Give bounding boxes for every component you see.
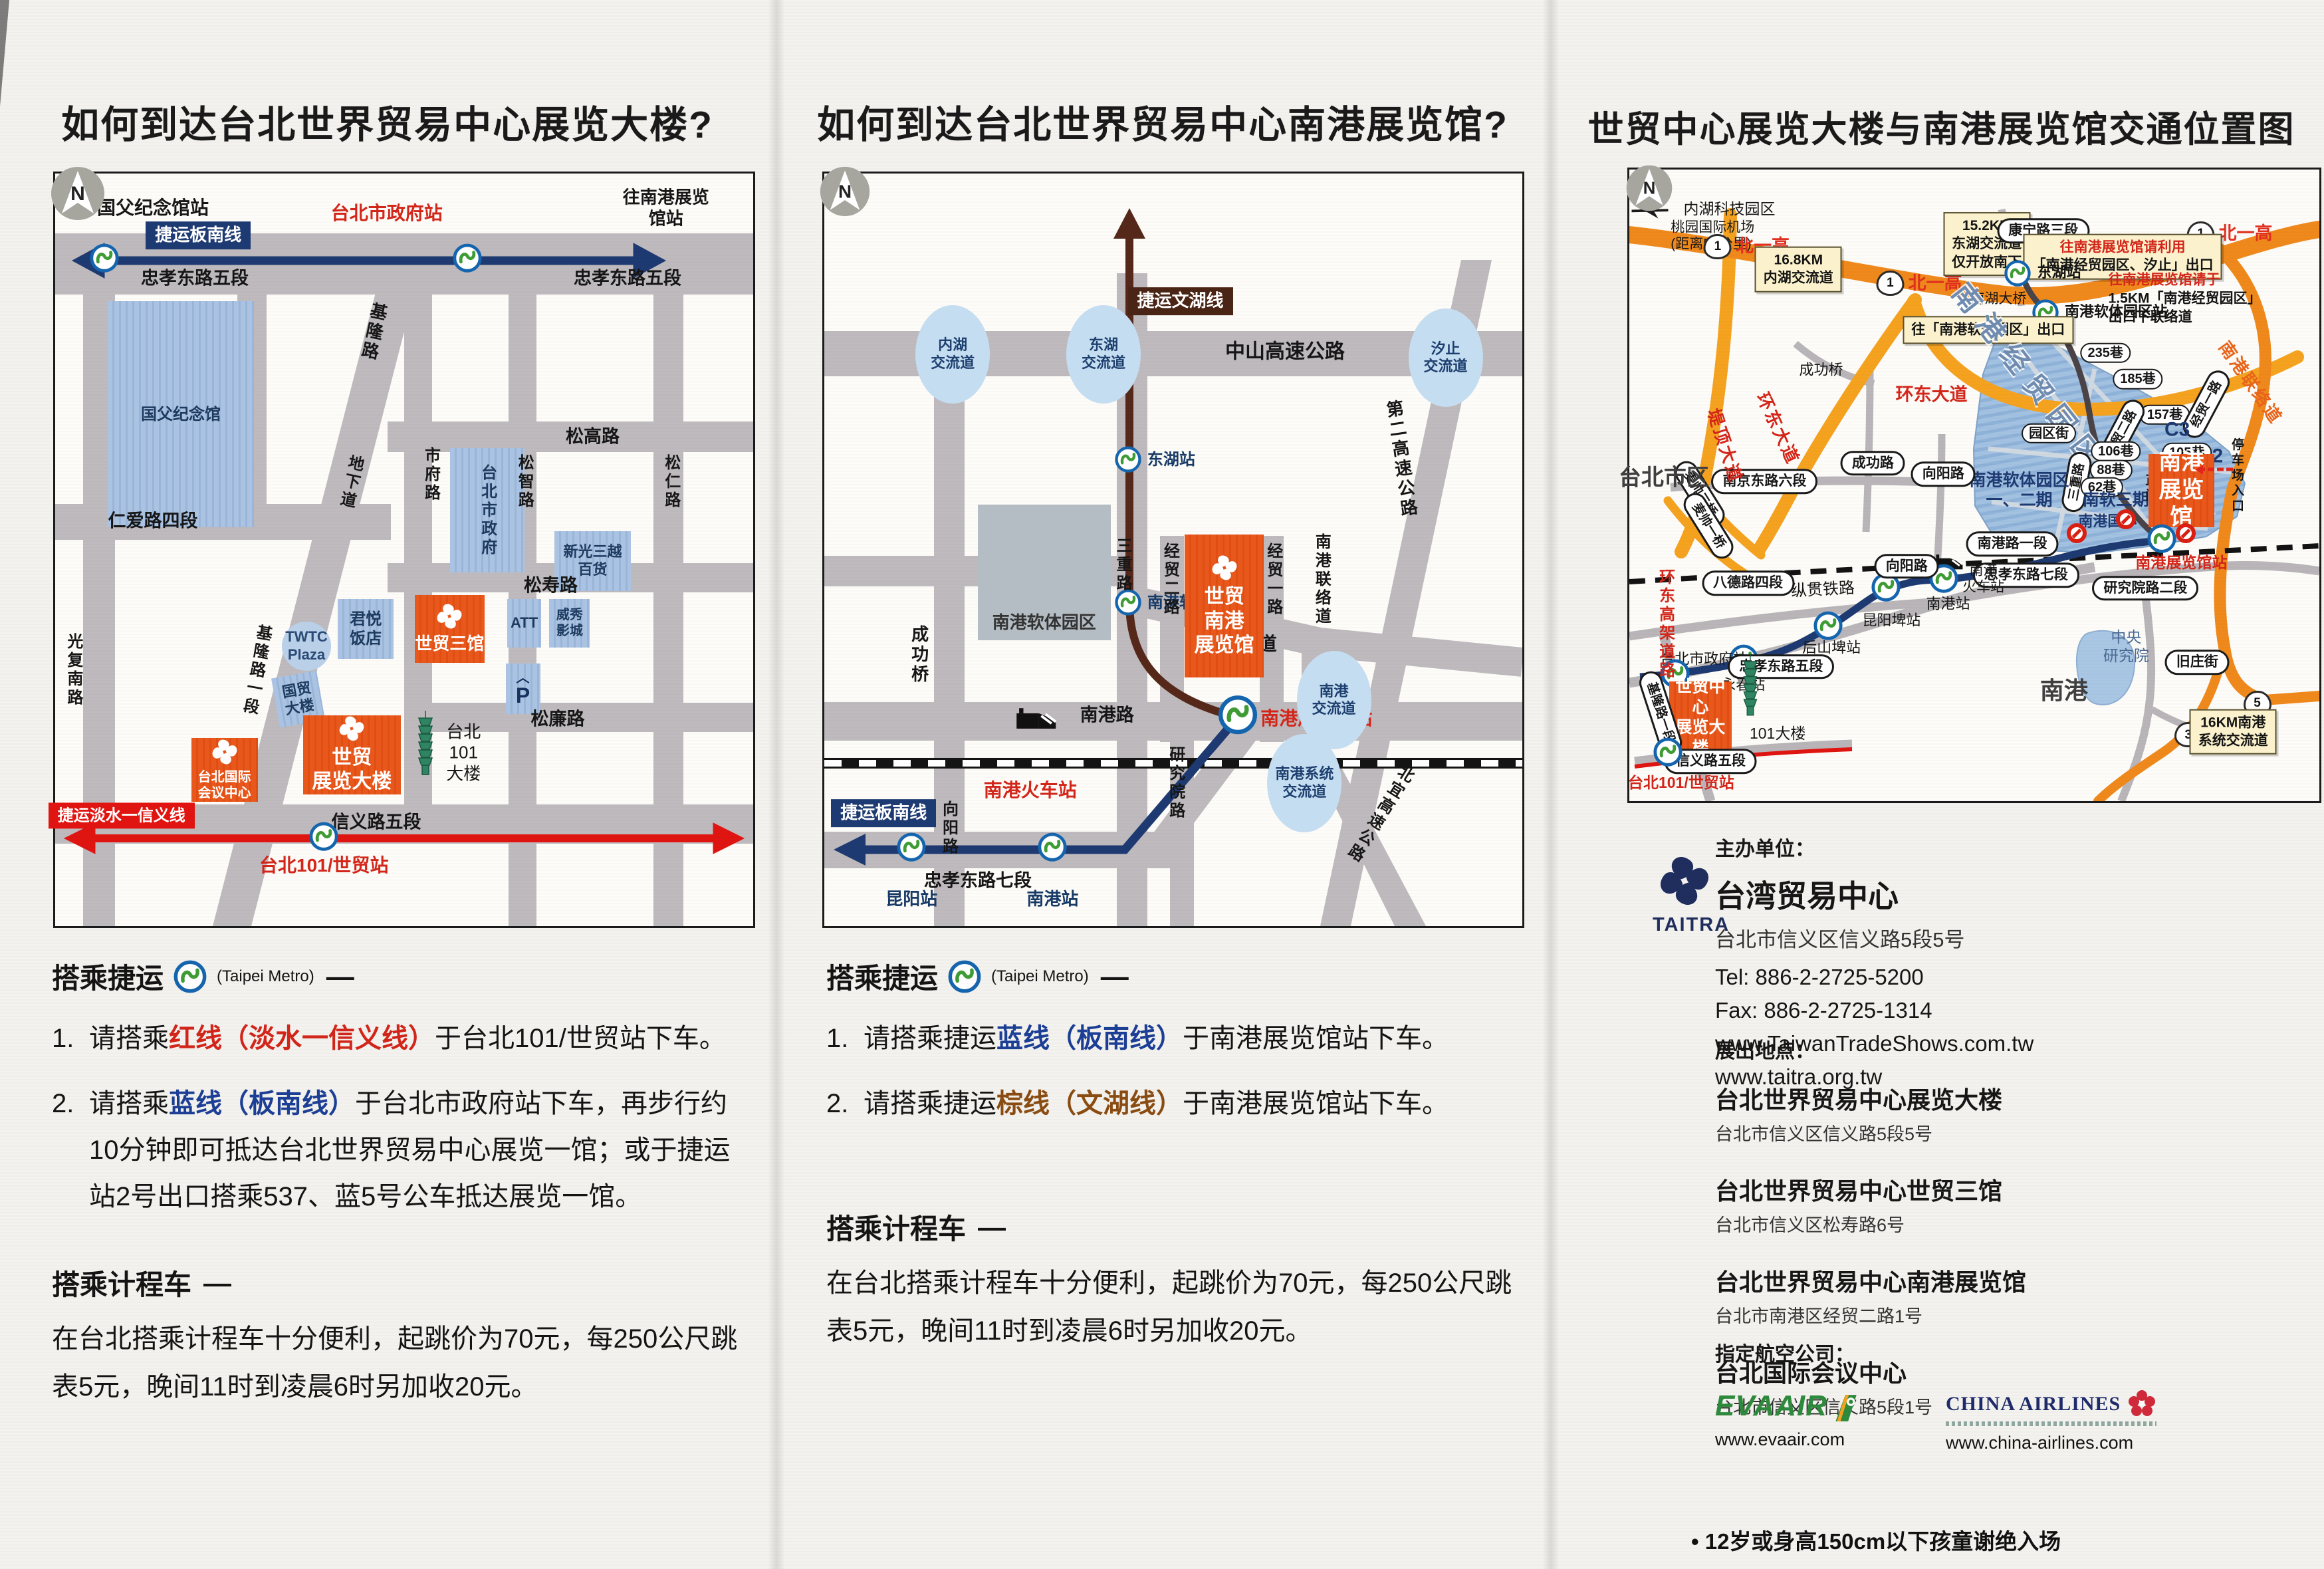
map-label: 101大楼 xyxy=(1750,724,1805,743)
road-label: 向阳路 xyxy=(939,800,958,856)
info-box: 16KM南港系统交流道 xyxy=(2190,709,2277,755)
map-label: 环东大道 xyxy=(1896,384,1968,406)
step-text: 于台北101/世贸站下车。 xyxy=(435,1024,726,1053)
road-label: 松智路 xyxy=(515,454,534,510)
panel1-title: 如何到达台北世界贸易中心展览大楼? xyxy=(0,94,774,149)
road-sign: 成功路 xyxy=(1841,451,1905,476)
map-label: 昆阳站 xyxy=(885,890,937,911)
road-sign: 南港路一段 xyxy=(1966,532,2059,557)
dash: — xyxy=(203,1267,231,1299)
mrt-station: 东湖站 xyxy=(1114,445,1195,473)
venue-address: 台北市南港区经贸二路1号 xyxy=(1715,1302,2300,1328)
taxi-heading-row: 搭乘计程车 — xyxy=(52,1263,747,1303)
metro-step: 2.请搭乘蓝线（板南线）于台北市政府站下车，再步行约10分钟即可抵达台北世界贸易… xyxy=(52,1080,747,1220)
plum-blossom-icon xyxy=(2127,1389,2156,1419)
metro-station-icon xyxy=(89,243,120,279)
road-label: 南港路 xyxy=(1080,705,1134,727)
building-block: 君悦 饭店 xyxy=(338,599,394,660)
taitra-pinwheel-icon xyxy=(211,739,238,765)
china-airlines-name: CHINA AIRLINES xyxy=(1946,1393,2121,1415)
panel1-instructions: 搭乘捷运 (Taipei Metro) — 1.请搭乘红线（淡水一信义线）于台北… xyxy=(52,956,747,1411)
road-label: 中山高速公路 xyxy=(1225,340,1345,365)
road-label: 成功桥 xyxy=(908,625,929,685)
taxi-heading: 搭乘计程车 xyxy=(52,1263,191,1303)
dash: — xyxy=(1101,961,1129,993)
metro-station-icon xyxy=(1653,737,1683,773)
step-text: 蓝线（板南线） xyxy=(996,1024,1183,1053)
map-label: 台北市区 xyxy=(1619,464,1709,491)
metro-step: 1.请搭乘红线（淡水一信义线）于台北101/世贸站下车。 xyxy=(52,1015,747,1062)
highway-name: 北一高 xyxy=(2219,223,2273,245)
info-box-line: 系统交流道 xyxy=(2198,732,2268,750)
road-label: 经贸一路 xyxy=(1264,543,1283,617)
road-sign: 旧庄街 xyxy=(2165,650,2230,675)
panel3-title: 世贸中心展览大楼与南港展览馆交通位置图 xyxy=(1559,100,2324,152)
metro-steps: 1.请搭乘捷运蓝线（板南线）于南港展览馆站下车。2.请搭乘捷运棕线（文湖线）于南… xyxy=(826,1015,1521,1127)
organizer-address: 台北市信义区信义路5段5号 xyxy=(1715,923,2300,953)
step-number: 2. xyxy=(826,1080,848,1127)
building-block: 南港软体园区 xyxy=(978,505,1111,640)
taxi-text: 在台北搭乘计程车十分便利，起跳价为70元，每250公尺跳表5元，晚间11时到凌晨… xyxy=(826,1259,1521,1355)
road-label: 光复南路 xyxy=(64,633,83,707)
panel2-title: 如何到达台北世界贸易中心南港展览馆? xyxy=(775,94,1550,149)
venue-name: 台北世界贸易中心南港展览馆 xyxy=(1715,1263,2300,1298)
road-label: 忠孝东路五段 xyxy=(141,268,249,290)
map-label: 南港站 xyxy=(1026,890,1078,911)
road-sign: 向阳路 xyxy=(1875,554,1939,579)
highway-number: 1 xyxy=(1876,271,1904,296)
metro-station-icon xyxy=(452,243,483,279)
road-label: 环东高架道路 xyxy=(1655,568,1675,680)
compass-icon xyxy=(819,166,871,221)
eva-air-url: www.evaair.com xyxy=(1715,1429,1859,1450)
road-label: 忠孝东路五段 xyxy=(574,268,681,290)
eva-air-tailfin-icon xyxy=(1831,1393,1859,1423)
no-entry-icon xyxy=(2176,523,2196,543)
venue-name: 台北世界贸易中心展览大楼 xyxy=(1715,1081,2300,1116)
interchange-label: 内湖 交流道 xyxy=(915,305,990,404)
map-label: 纵贯铁路 xyxy=(1790,578,1855,601)
road-sign: 八德路四段 xyxy=(1702,570,1794,596)
metro-heading-row: 搭乘捷运 (Taipei Metro) — xyxy=(826,956,1521,997)
step-text: 红线（淡水一信义线） xyxy=(169,1024,435,1053)
metro-step: 1.请搭乘捷运蓝线（板南线）于南港展览馆站下车。 xyxy=(826,1015,1521,1062)
china-airlines-url: www.china-airlines.com xyxy=(1946,1433,2156,1453)
scan-edge-shadow xyxy=(0,0,9,106)
map-twtc-exhibition-hall: 国父纪念馆站捷运板南线台北市政府站往南港展览馆站忠孝东路五段忠孝东路五段基隆路国… xyxy=(53,172,755,928)
metro-caption: (Taipei Metro) xyxy=(991,967,1089,986)
step-text: 请搭乘 xyxy=(89,1024,169,1053)
map-label: 国父纪念馆站 xyxy=(97,197,209,219)
map-label: 中央 研究院 xyxy=(2103,628,2149,665)
taipei-metro-icon xyxy=(947,959,982,994)
airlines-heading: 指定航空公司： xyxy=(1715,1338,2300,1367)
step-text: 请搭乘捷运 xyxy=(864,1089,996,1118)
highway-number: 1 xyxy=(1704,234,1732,259)
building-block: 台北市政府 xyxy=(450,448,524,572)
venues-heading: 展出地点： xyxy=(1715,1034,2300,1064)
step-text: 请搭乘捷运 xyxy=(864,1024,996,1053)
step-number: 2. xyxy=(52,1080,74,1127)
organizer-name: 台湾贸易中心 xyxy=(1715,872,2300,916)
map-label: 昆阳埤站 xyxy=(1862,612,1920,630)
road-sign: 106巷 xyxy=(2091,441,2141,461)
mrt-station-label: 南港软体园区站 xyxy=(2065,303,2167,321)
building-block: ATT xyxy=(507,599,540,648)
road-label: 经贸二路 xyxy=(1160,543,1179,617)
mrt-station-label: 东湖站 xyxy=(1147,450,1195,469)
road-label: 松高路 xyxy=(566,426,620,448)
road-label: 松寿路 xyxy=(524,575,578,597)
venue-address: 台北市信义区信义路5段5号 xyxy=(1715,1120,2300,1146)
road-label: 松仁路 xyxy=(661,454,680,510)
dash: — xyxy=(978,1211,1006,1243)
no-entry-icon xyxy=(2067,523,2087,543)
road-label: 忠孝东路七段 xyxy=(924,870,1032,892)
map-label: 内湖科技园区 xyxy=(1684,199,1776,218)
metro-steps: 1.请搭乘红线（淡水一信义线）于台北101/世贸站下车。2.请搭乘蓝线（板南线）… xyxy=(52,1015,747,1220)
fold-crease xyxy=(1542,0,1560,1569)
fold-crease xyxy=(768,0,785,1569)
venue-name: 台北世界贸易中心世贸三馆 xyxy=(1715,1172,2300,1207)
metro-station-icon xyxy=(1037,832,1068,868)
mrt-line-badge: 捷运板南线 xyxy=(831,799,936,827)
metro-heading-row: 搭乘捷运 (Taipei Metro) — xyxy=(52,956,747,997)
building-block: 台北国际 会议中心 xyxy=(191,738,258,802)
map-nangang-hall: 捷运文湖线内湖 交流道东湖 交流道中山高速公路汐止 交流道东湖站南湖大桥南港软体… xyxy=(822,172,1524,928)
map-label: 南港展览馆站 xyxy=(2135,553,2227,572)
info-box-line: 内湖交流道 xyxy=(1764,269,1833,287)
organizer-fax: Fax: 886-2-2725-1314 xyxy=(1715,998,2300,1023)
map-label: 台北101/世贸站 xyxy=(259,854,389,877)
venue-address: 台北市信义区松寿路6号 xyxy=(1715,1211,2300,1237)
step-text: 请搭乘 xyxy=(89,1089,169,1118)
info-box-line: 往南港展览馆请利用 xyxy=(2032,239,2214,257)
road-sign: 235巷 xyxy=(2081,342,2131,362)
interchange-label: 南港系统 交流道 xyxy=(1267,734,1341,832)
organizer-tel: Tel: 886-2-2725-5200 xyxy=(1715,965,2300,990)
road-sign: 185巷 xyxy=(2113,369,2162,389)
road-sign: 向阳路 xyxy=(1911,461,1976,487)
organizer-heading: 主办单位： xyxy=(1715,832,2300,862)
mrt-station: 东湖站 xyxy=(2004,259,2081,287)
logo-hatch-line xyxy=(1946,1421,2156,1426)
dash: — xyxy=(326,961,354,993)
road-label: 松廉路 xyxy=(531,708,585,730)
train-station-icon xyxy=(1013,707,1061,739)
step-text: 蓝线（板南线） xyxy=(169,1089,355,1118)
parking-entrance-arrow xyxy=(2198,468,2233,471)
taitra-pinwheel-icon xyxy=(1211,554,1238,581)
road-label: 市府路 xyxy=(421,447,440,503)
mrt-station-label: 东湖站 xyxy=(2037,264,2081,282)
china-airlines-logo: CHINA AIRLINES www.china-airlines.com xyxy=(1946,1389,2156,1453)
step-number: 1. xyxy=(52,1015,74,1062)
map-label: 往南港展览馆站 xyxy=(622,187,709,229)
taitra-pinwheel-icon xyxy=(436,603,463,630)
building-block: 威秀 影城 xyxy=(549,599,590,648)
road-label: 南港联络道 xyxy=(1312,533,1331,626)
taipei-metro-icon xyxy=(173,959,207,994)
eva-air-name: EVAAIR xyxy=(1715,1389,1827,1423)
taitra-logo: TAITRA xyxy=(1653,855,1716,936)
step-number: 1. xyxy=(826,1015,848,1062)
map-label: 南软三期 xyxy=(2083,490,2149,511)
taxi-heading: 搭乘计程车 xyxy=(826,1207,966,1247)
no-entry-icon xyxy=(2116,509,2136,529)
mrt-line-badge: 捷运淡水一信义线 xyxy=(49,802,195,828)
map-label: 停车场入口 xyxy=(2229,437,2244,514)
map-label: 南港火车站 xyxy=(984,779,1077,802)
mrt-line-badge: 捷运文湖线 xyxy=(1127,288,1232,316)
road-label: 研究院路 xyxy=(1166,746,1185,820)
step-text: 于南港展览馆站下车。 xyxy=(1183,1024,1449,1053)
metro-heading: 搭乘捷运 xyxy=(52,956,164,997)
map-label: 南港软体园区 一、二期 xyxy=(1969,470,2069,511)
metro-station-icon xyxy=(1217,695,1258,741)
map-label: 南港 火车站 xyxy=(1962,562,2004,596)
map-overall-traffic: 内湖科技园区桃园国际机场 (距离50公里)1北一高16.8KM内湖交流道1北一高… xyxy=(1627,168,2321,803)
building-block: 南港 展览馆 xyxy=(2149,454,2215,527)
map-label: 台北101/世贸站 xyxy=(1628,773,1734,791)
mrt-line-badge: 捷运板南线 xyxy=(146,221,251,249)
parking-block: ︿P xyxy=(506,664,540,714)
taipei101-icon xyxy=(1738,654,1762,722)
interchange-label: 汐止 交流道 xyxy=(1409,308,1483,407)
info-box: 16.8KM内湖交流道 xyxy=(1755,247,1842,293)
road-sign: 园区街 xyxy=(2022,423,2076,443)
map-label: 南港 xyxy=(2040,676,2088,705)
road-label: 信义路五段 xyxy=(332,811,421,833)
road-label: 仁爱路四段 xyxy=(108,511,198,533)
road-label: 三重路 xyxy=(1113,537,1132,593)
admission-note: • 12岁或身高150cm以下孩童谢绝入场 xyxy=(1691,1524,2061,1556)
metro-caption: (Taipei Metro) xyxy=(217,967,314,986)
building-block: 世贸 展览大楼 xyxy=(303,715,401,794)
building-block: TWTC Plaza xyxy=(282,622,331,671)
taitra-pinwheel-icon xyxy=(338,715,365,742)
building-block: 世贸 南港 展览馆 xyxy=(1185,535,1264,677)
taitra-pinwheel-icon xyxy=(1659,855,1710,907)
map-label: 台北市政府站 xyxy=(331,202,443,225)
map-label: 成功桥 xyxy=(1800,362,1843,380)
map-label: 台北 101 大楼 xyxy=(446,721,481,784)
taitra-logo-text: TAITRA xyxy=(1653,914,1716,936)
building-block: 国父纪念馆 xyxy=(108,301,255,527)
panel2-instructions: 搭乘捷运 (Taipei Metro) — 1.请搭乘捷运蓝线（板南线）于南港展… xyxy=(826,956,1521,1355)
info-box-line: 16KM南港 xyxy=(2198,713,2268,731)
road-sign: 研究院路二段 xyxy=(2092,576,2198,601)
step-text: 棕线（文湖线） xyxy=(996,1089,1183,1118)
taxi-text: 在台北搭乘计程车十分便利，起跳价为70元，每250公尺跳表5元，晚间11时到凌晨… xyxy=(52,1315,747,1411)
step-text: 于南港展览馆站下车。 xyxy=(1183,1089,1449,1118)
taipei101-icon xyxy=(413,686,437,804)
airlines-block: 指定航空公司： EVAAIR www.evaair.com CHINA AIRL… xyxy=(1715,1338,2300,1453)
compass-icon xyxy=(50,166,106,225)
metro-station-icon xyxy=(896,832,927,868)
taxi-heading-row: 搭乘计程车 — xyxy=(826,1207,1521,1247)
building-block: 世贸三馆 xyxy=(415,595,485,663)
metro-step: 2.请搭乘捷运棕线（文湖线）于南港展览馆站下车。 xyxy=(826,1080,1521,1127)
map-label: C3 xyxy=(2164,418,2190,443)
metro-station-icon xyxy=(308,821,339,857)
info-box-line: 16.8KM xyxy=(1764,251,1833,269)
metro-station-icon xyxy=(1813,610,1843,646)
interchange-label: 东湖 交流道 xyxy=(1066,305,1141,404)
eva-air-logo: EVAAIR www.evaair.com xyxy=(1715,1389,1859,1450)
compass-icon xyxy=(1625,164,1673,215)
metro-heading: 搭乘捷运 xyxy=(826,956,938,997)
brochure-sheet: 如何到达台北世界贸易中心展览大楼? 如何到达台北世界贸易中心南港展览馆? 世贸中… xyxy=(0,0,2324,1569)
info-box-line: 往南港展览馆请于 xyxy=(2109,271,2262,289)
